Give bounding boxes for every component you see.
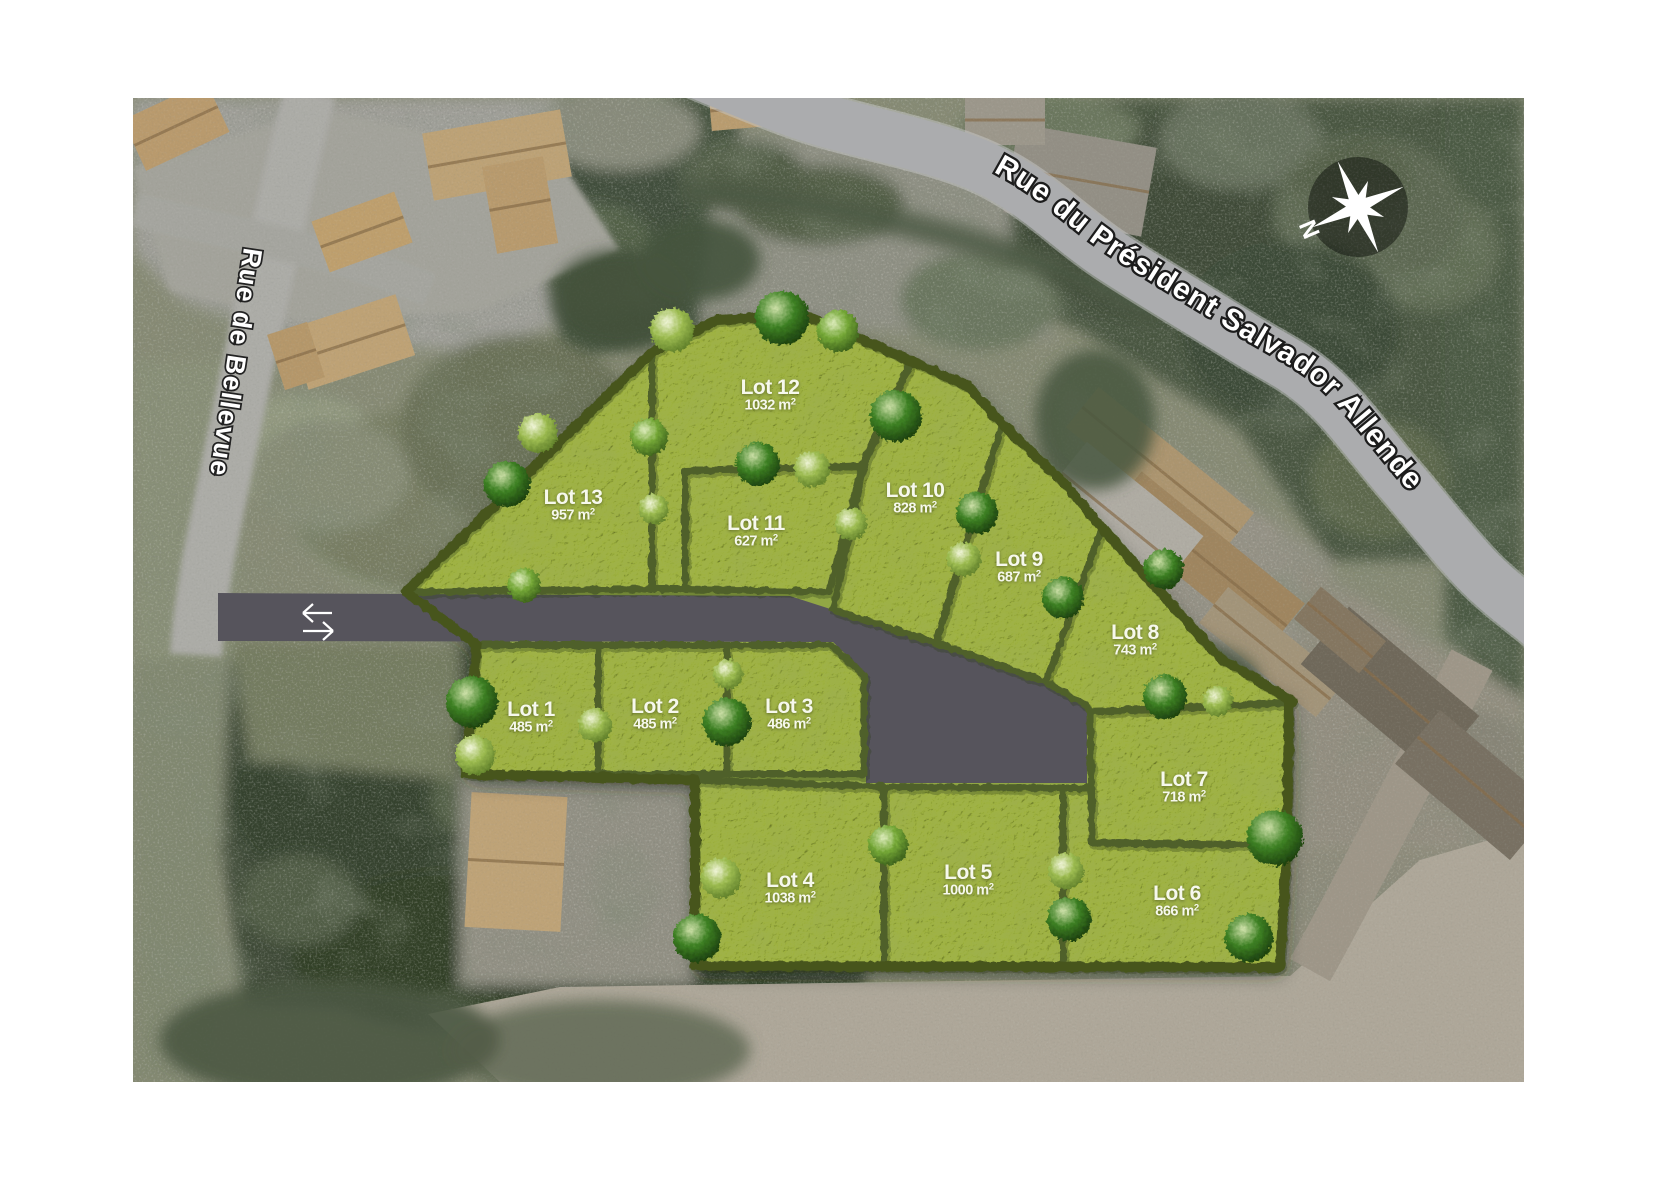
svg-text:Lot 5: Lot 5: [944, 861, 992, 884]
svg-text:Lot 4: Lot 4: [766, 869, 814, 892]
svg-text:957 m2: 957 m2: [551, 507, 595, 524]
svg-text:627 m2: 627 m2: [734, 533, 778, 550]
svg-text:485 m2: 485 m2: [633, 716, 677, 733]
svg-text:485 m2: 485 m2: [509, 719, 553, 736]
svg-text:687 m2: 687 m2: [997, 569, 1041, 586]
svg-text:743 m2: 743 m2: [1113, 642, 1157, 659]
svg-text:718 m2: 718 m2: [1162, 789, 1206, 806]
svg-text:1000 m2: 1000 m2: [943, 882, 994, 899]
svg-text:1032 m2: 1032 m2: [745, 397, 796, 414]
svg-text:1038 m2: 1038 m2: [765, 890, 816, 907]
svg-text:486 m2: 486 m2: [767, 716, 811, 733]
svg-text:866 m2: 866 m2: [1155, 903, 1199, 920]
svg-text:828 m2: 828 m2: [893, 500, 937, 517]
